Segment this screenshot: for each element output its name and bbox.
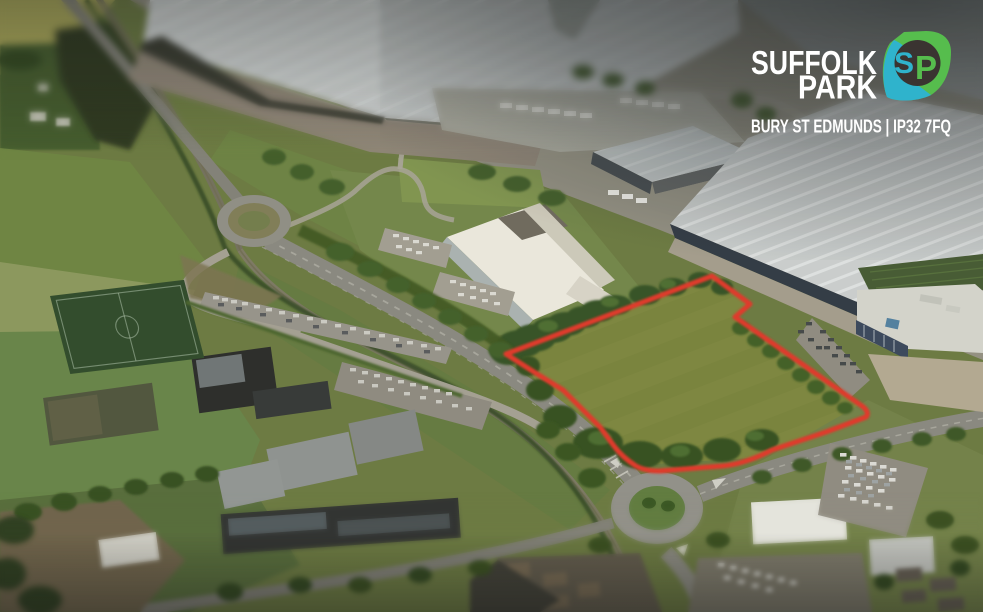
svg-text:BURY ST EDMUNDS | IP32 7FQ: BURY ST EDMUNDS | IP32 7FQ xyxy=(751,116,951,137)
svg-text:PARK: PARK xyxy=(798,69,877,106)
svg-text:P: P xyxy=(915,49,937,86)
svg-text:S: S xyxy=(894,47,914,80)
